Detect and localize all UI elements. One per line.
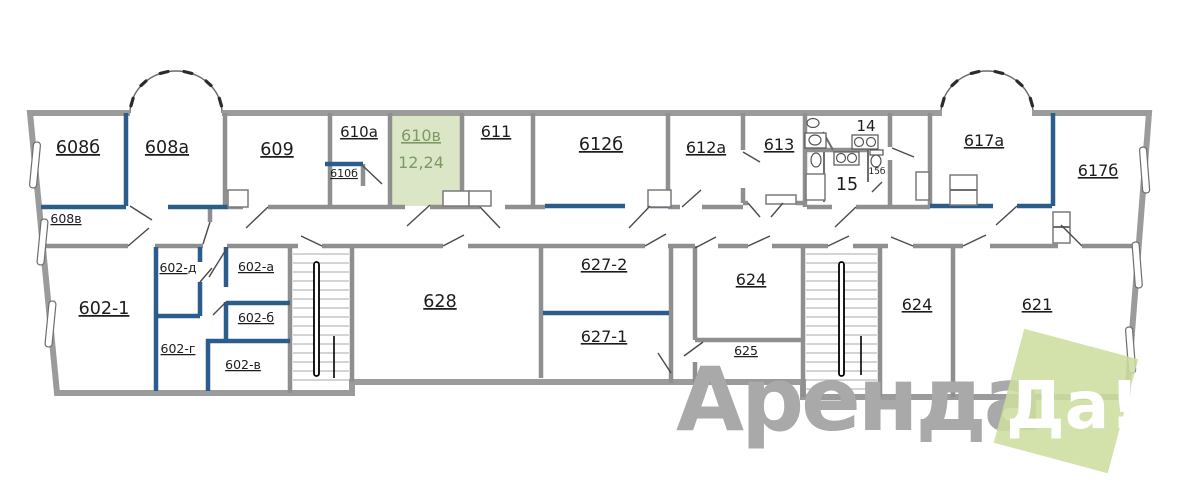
- toilet-icon: [811, 153, 821, 167]
- watermark-brand-text: Аренда: [676, 348, 1040, 451]
- highlight-room-area: 12,24: [398, 153, 444, 172]
- toilet-icon: [809, 135, 821, 145]
- room-label-628: 628: [423, 292, 456, 312]
- floor-plan-canvas: 608б 608а 609 610а 610б 610в 12,24 611 6…: [0, 0, 1178, 495]
- room-label-612b: 612б: [579, 135, 623, 155]
- room-label-602g: 602-г: [161, 341, 196, 356]
- room-label-624-first: 624: [736, 270, 767, 289]
- room-label-602d: 602-д: [159, 260, 196, 275]
- room-label-608b: 608б: [56, 138, 100, 158]
- room-label-15b: 15б: [868, 167, 885, 177]
- room-label-602-1: 602-1: [79, 299, 130, 319]
- toilet-icon: [871, 155, 881, 167]
- room-label-617a: 617а: [964, 131, 1004, 150]
- room-label-609: 609: [260, 140, 293, 160]
- basin-icon: [837, 154, 846, 163]
- room-label-608v: 608в: [50, 211, 81, 226]
- watermark-badge-text: Да!: [1006, 367, 1139, 444]
- room-label-627-2: 627-2: [581, 255, 628, 274]
- room-label-608a: 608а: [145, 138, 189, 158]
- stair-handrail: [314, 262, 319, 376]
- room-label-621: 621: [1022, 295, 1053, 314]
- room-label-627-1: 627-1: [581, 327, 628, 346]
- room-label-613: 613: [764, 135, 795, 154]
- room-label-617b: 617б: [1078, 161, 1118, 180]
- room-label-14: 14: [856, 117, 875, 135]
- room-label-624-second: 624: [902, 295, 933, 314]
- room-label-610bm: 610б: [330, 167, 358, 180]
- room-label-602v: 602-в: [225, 357, 261, 372]
- basin-icon: [848, 154, 857, 163]
- room-label-602b: 602-б: [238, 310, 274, 325]
- highlight-room-label: 610в: [401, 126, 441, 145]
- room-label-15: 15: [836, 175, 858, 195]
- floor-plan-page: 608б 608а 609 610а 610б 610в 12,24 611 6…: [0, 0, 1178, 495]
- room-label-611: 611: [481, 122, 512, 141]
- room-label-610a: 610а: [340, 123, 378, 141]
- room-label-602a: 602-а: [238, 259, 274, 274]
- basin-icon: [867, 138, 876, 147]
- sink-icon: [807, 119, 819, 128]
- room-label-612a: 612а: [686, 138, 726, 157]
- basin-icon: [855, 138, 864, 147]
